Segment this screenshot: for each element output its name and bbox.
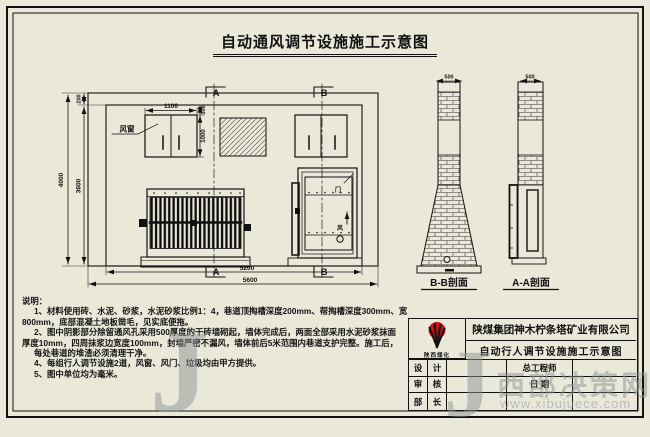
cell-blank [573,377,636,394]
cell-signature [447,377,507,394]
door-label-mid: 风 [337,224,343,232]
titleblock-drawing-title: 自动行人调节设施施工示意图 [466,341,636,359]
dim-total-height: 4000 [58,172,65,187]
dim-window-gap: 300 [201,105,207,114]
notes-block: 说明： 1、材料使用砖、水泥、砂浆，水泥砂浆比例1：4，巷道顶掏槽深度200mm… [22,296,410,379]
vent-opening-hatched [220,118,266,156]
air-window-right [295,115,347,157]
sheet-title-text: 自动通风调节设施施工示意图 [213,31,437,57]
mark-a-top: A [213,88,220,99]
dim-window-width: 1100 [164,103,178,110]
bb-flared-base [421,185,477,266]
cell-chief-engineer: 总工程师 [507,360,573,377]
note-line: 800mm，底部混凝土地板凿毛，见实底便拖。 [22,317,410,327]
window-label: 风窗 [120,124,135,134]
cell-blank [573,393,636,410]
cell-design2: 计 [428,360,447,377]
sheet-title: 自动通风调节设施施工示意图 [0,31,650,57]
cell-design: 设 [409,360,428,377]
titleblock-grid: 设 计 总工程师 审 核 日 期 部 长 [409,359,636,410]
company-logo-icon [422,321,452,349]
note-line: 厚度10mm，四周抹浆边宽度100mm，封墙严密不漏风，墙体前后5米范围内巷道支… [22,338,410,348]
air-door [288,168,362,266]
cell-minister2: 长 [428,393,447,410]
notes-heading: 说明： [22,296,410,306]
cell-blank [573,360,636,377]
title-block: 陕西煤化 陕煤集团神木柠条塔矿业有限公司 自动行人调节设施施工示意图 设 计 总… [408,318,638,411]
cell-signature [447,393,507,410]
company-name: 陕煤集团神木柠条塔矿业有限公司 [466,319,636,341]
grille-rivets [153,192,241,194]
bb-drain-hole [444,257,450,263]
elevation-view: A B A B 风窗 [58,84,378,287]
dim-outer-width: 5600 [243,277,258,284]
dim-inner-height: 3600 [76,178,83,193]
aa-door-leaf [510,185,518,258]
note-line: 5、图中单位均为毫米。 [22,369,410,379]
door-label-top: 门 [335,186,341,194]
door-bolts [308,192,350,234]
dim-window-height: 1000 [201,129,207,143]
section-bb: 500 B-B剖面 [417,75,481,290]
grille-handle [190,220,197,226]
cell-review2: 核 [428,377,447,394]
section-bb-label: B-B剖面 [430,276,468,289]
dim-aa-thickness: 500 [525,75,534,81]
company-logo-cell: 陕西煤化 [409,319,466,359]
cell-minister: 部 [409,393,428,410]
mark-b-bottom: B [321,267,328,278]
mark-a-bottom: A [213,267,220,278]
door-handle [337,236,343,242]
note-line: 2、图中阴影部分除留通风孔采用500厚度的干砖墙砌起，墙体完成后，两面全部采用水… [22,327,410,337]
note-line: 4、每组行人调节设施2道，风窗、风门、垃圾均由甲方提供。 [22,358,410,368]
dim-inner-width: 5200 [240,265,255,272]
section-aa: 500 A-A剖面 [503,75,559,290]
cell-signature [447,360,507,377]
note-line: 1、材料使用砖、水泥、砂浆，水泥砂浆比例1：4，巷道顶掏槽深度200mm、帮掏槽… [22,306,410,316]
louver-grille [139,189,251,267]
door-base [288,258,362,266]
note-line: 每处巷道的堆渣必须清理干净。 [22,348,410,358]
aa-door-frame [527,190,538,251]
mark-b-top: B [321,88,328,99]
cell-blank [507,393,573,410]
dim-top-slot: 200 [77,94,83,103]
cell-review: 审 [409,377,428,394]
section-aa-label: A-A剖面 [512,276,550,289]
dim-bb-thickness: 500 [444,75,453,81]
air-window-left [145,115,197,157]
cell-date: 日 期 [507,377,573,394]
drawing-sheet: { "title": {"main": "自动通风调节设施施工示意图"}, "d… [0,0,650,423]
